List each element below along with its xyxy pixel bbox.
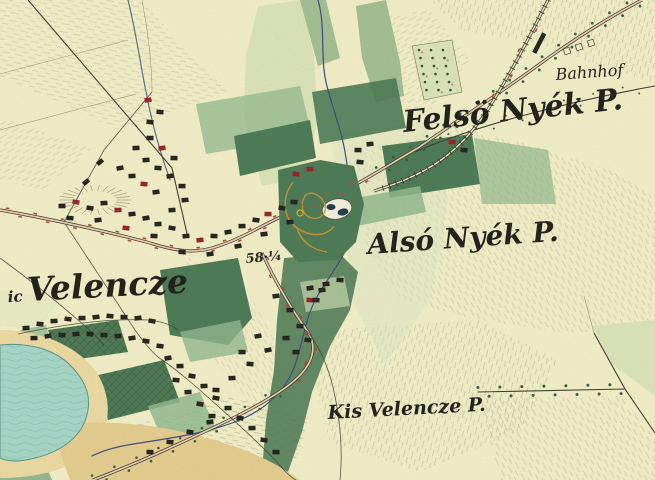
map-canvas: Bahnhof Felsö Nyék P. Alsó Nyék P. icVel… [0, 0, 655, 480]
paper-grain-overlay [0, 0, 655, 480]
map-stage: Bahnhof Felsö Nyék P. Alsó Nyék P. icVel… [0, 0, 655, 480]
